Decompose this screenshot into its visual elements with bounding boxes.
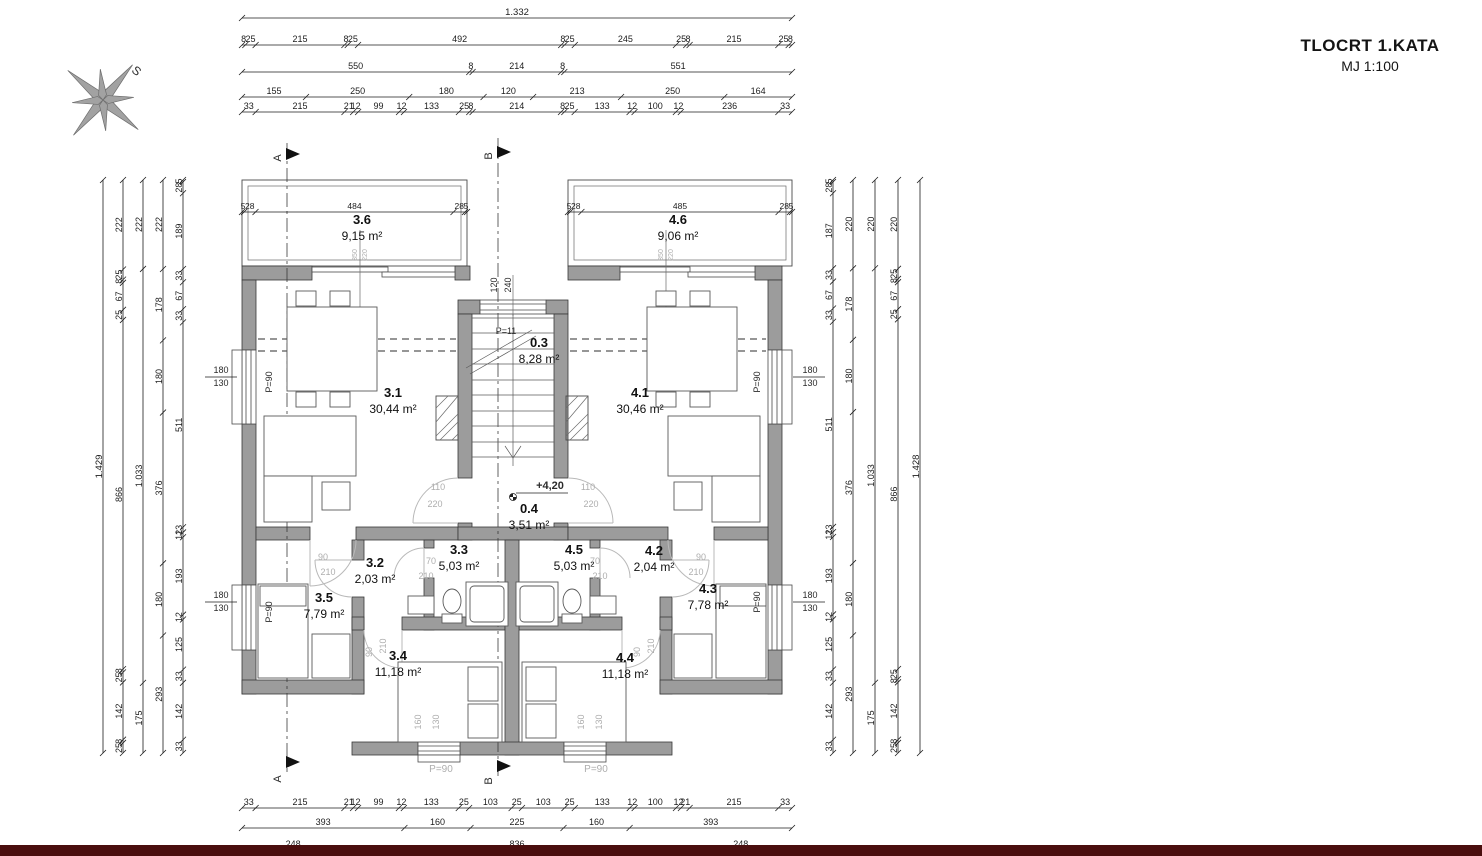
dim-label: 103 (483, 797, 498, 807)
dim-label: 99 (374, 101, 384, 111)
room-number: 3.6 (353, 212, 371, 227)
dim-label: 160 (430, 817, 445, 827)
wardrobe (674, 634, 712, 678)
room-number: 4.2 (645, 543, 663, 558)
dim-label: 215 (726, 797, 741, 807)
dim-label: 180 (439, 86, 454, 96)
room-area: 5,03 m² (554, 559, 595, 573)
dim-label: 484 (347, 201, 361, 211)
room-number: 4.5 (565, 542, 583, 557)
room-area: 7,78 m² (688, 598, 729, 612)
dim-label: 250 (665, 86, 680, 96)
dim-label: 125 (824, 637, 834, 652)
sink (590, 596, 616, 614)
title-block: TLOCRT 1.KATA MJ 1:100 (1290, 36, 1450, 74)
room-number: 3.5 (315, 590, 333, 605)
dim-label: 133 (424, 101, 439, 111)
chimney-hatch-left (436, 396, 458, 440)
dim-label: 1.428 (911, 455, 922, 479)
annotation-d210: 210 (592, 571, 607, 581)
dim-label: 178 (154, 297, 164, 312)
dim-label: 25 (889, 669, 899, 679)
dim-label: 25 (889, 309, 899, 319)
annotation-d110: 110 (581, 482, 595, 492)
dim-label: 245 (618, 34, 633, 44)
room-number: 3.4 (389, 648, 408, 663)
floor-plan-sheet: 1.33282521582549282524525821525855082148… (0, 0, 1482, 856)
dim-label: 25 (459, 797, 469, 807)
dim-label: 142 (889, 703, 899, 718)
room-number: 0.3 (530, 335, 548, 350)
dim-label: 25 (512, 797, 522, 807)
annotation-d110: 110 (431, 482, 445, 492)
dim-label: 164 (751, 86, 766, 96)
dim-label: 25 (114, 672, 124, 682)
dim-label: 12 (627, 101, 637, 111)
toilet (443, 589, 461, 613)
annotation-w180: 180 (802, 590, 817, 600)
dim-label: 25 (114, 743, 124, 753)
dim-label: 33 (824, 671, 834, 681)
annotation-w180: 180 (213, 590, 228, 600)
dim-label: 12 (174, 612, 184, 622)
dim-label: 1.332 (505, 7, 529, 18)
dim-label: 12 (824, 530, 834, 540)
annotation-p90: P=90 (264, 601, 274, 622)
dim-label: 236 (722, 101, 737, 111)
dim-label: 866 (114, 487, 124, 502)
dim-label: 5 (464, 201, 469, 211)
dim-label: 511 (174, 418, 184, 432)
dim-label: 25 (114, 310, 124, 320)
dim-label: 142 (114, 704, 124, 719)
annotation-w130: 130 (213, 603, 228, 613)
dim-label: 33 (244, 101, 254, 111)
dim-label: 866 (889, 487, 899, 502)
annotation-secA: A (272, 154, 284, 162)
annotation-level: +4,20 (536, 480, 564, 492)
room-area: 2,04 m² (634, 560, 675, 574)
annotation-w180: 180 (213, 365, 228, 375)
sofa (264, 416, 356, 476)
annotation-secB: B (483, 152, 495, 159)
dim-label: 193 (174, 568, 184, 583)
dim-label: 293 (154, 687, 164, 702)
room-area: 3,51 m² (509, 518, 550, 532)
room-area: 2,03 m² (355, 572, 396, 586)
dim-label: 222 (154, 217, 164, 232)
room-area: 8,28 m² (519, 352, 560, 366)
dim-label: 225 (509, 817, 524, 827)
annotation-w130: 130 (213, 378, 228, 388)
dim-label: 12 (396, 101, 406, 111)
annotation-d210: 210 (418, 571, 433, 581)
dim-label: 67 (889, 291, 899, 301)
dim-label: 133 (424, 797, 439, 807)
dim-label: 250 (350, 86, 365, 96)
annotation-w160: 160 (576, 714, 586, 729)
dim-label: 25 (245, 34, 255, 44)
dim-label: 180 (154, 369, 164, 384)
dim-label: 12 (351, 797, 361, 807)
annotation-d210: 210 (646, 638, 656, 653)
annotation-w130: 130 (431, 714, 441, 729)
dim-label: 8 (685, 34, 690, 44)
annotation-d220: 220 (583, 499, 598, 509)
annotation-d90: 90 (632, 647, 642, 657)
dim-label: 222 (114, 217, 124, 232)
dim-label: 155 (266, 86, 281, 96)
dim-label: 25 (889, 269, 899, 279)
dim-label: 33 (174, 741, 184, 751)
annotation-p90: P=90 (584, 764, 608, 775)
annotation-w120: 120 (489, 277, 499, 292)
drawing-title: TLOCRT 1.KATA (1290, 36, 1450, 56)
dim-label: 12 (627, 797, 637, 807)
dim-label: 393 (703, 817, 718, 827)
dim-label: 189 (174, 224, 184, 239)
dim-label: 5 (789, 201, 794, 211)
annotation-secB: B (483, 777, 495, 784)
dim-label: 133 (595, 101, 610, 111)
dim-label: 220 (866, 217, 876, 232)
annotation-d90: 90 (696, 552, 706, 562)
dim-label: 1.033 (134, 465, 144, 488)
dim-label: 8 (560, 61, 565, 71)
dim-label: 215 (292, 34, 307, 44)
dim-label: 180 (154, 592, 164, 607)
dim-label: 28 (245, 201, 255, 211)
dim-label: 220 (844, 217, 854, 232)
drawing-scale: MJ 1:100 (1290, 58, 1450, 74)
dining-table (647, 307, 737, 391)
footer-bar (0, 845, 1482, 856)
annotation-p90: P=90 (752, 371, 762, 392)
dim-label: 33 (780, 797, 790, 807)
dim-label: 220 (889, 217, 899, 232)
dim-label: 12 (351, 101, 361, 111)
dim-label: 180 (844, 368, 854, 383)
room-area: 30,46 m² (616, 402, 663, 416)
dim-label: 1.429 (94, 455, 105, 479)
dim-label: 8 (114, 279, 124, 284)
dim-label: 180 (844, 592, 854, 607)
annotation-d70: 70 (590, 556, 600, 566)
dim-label: 214 (509, 61, 524, 71)
dim-label: 393 (316, 817, 331, 827)
annotation-d220: 220 (668, 249, 675, 261)
annotation-d210: 210 (378, 638, 388, 653)
dining-table (287, 307, 377, 391)
dim-label: 25 (565, 34, 575, 44)
dim-label: 67 (824, 290, 834, 300)
dim-label: 33 (824, 310, 834, 320)
annotation-w240: 240 (503, 277, 513, 292)
room-number: 4.3 (699, 581, 717, 596)
sofa (668, 416, 760, 476)
dim-label: 28 (174, 183, 184, 193)
dim-label: 492 (452, 34, 467, 44)
dim-label: 222 (134, 217, 144, 232)
annotation-d220: 220 (427, 499, 442, 509)
dim-label: 67 (174, 291, 184, 301)
room-number: 3.3 (450, 542, 468, 557)
annotation-p90: P=90 (429, 764, 453, 775)
dim-label: 33 (824, 741, 834, 751)
compass-rose (38, 35, 168, 165)
dim-label: 8 (889, 278, 899, 283)
dim-label: 8 (788, 34, 793, 44)
dim-label: 1.033 (866, 464, 876, 487)
sink (408, 596, 434, 614)
annotation-compass: S (129, 63, 144, 79)
dim-label: 293 (844, 687, 854, 702)
room-area: 9,15 m² (342, 229, 383, 243)
dim-label: 103 (536, 797, 551, 807)
annotation-w180: 180 (802, 365, 817, 375)
room-area: 9,06 m² (658, 229, 699, 243)
toilet (563, 589, 581, 613)
dim-label: 100 (648, 797, 663, 807)
dim-label: 8 (468, 101, 473, 111)
dim-label: 187 (824, 223, 834, 238)
dim-label: 12 (396, 797, 406, 807)
dim-label: 160 (589, 817, 604, 827)
dim-label: 215 (726, 34, 741, 44)
dim-label: 28 (571, 201, 581, 211)
dim-label: 485 (673, 201, 687, 211)
room-number: 3.2 (366, 555, 384, 570)
level-marker (510, 493, 569, 501)
dim-label: 25 (564, 101, 574, 111)
dim-label: 33 (174, 671, 184, 681)
annotation-d220: 220 (362, 249, 369, 261)
dim-label: 125 (174, 637, 184, 652)
dim-label: 376 (844, 480, 854, 495)
dim-label: 12 (824, 612, 834, 622)
dim-label: 12 (174, 530, 184, 540)
annotation-w160: 160 (413, 714, 423, 729)
dim-label: 25 (348, 34, 358, 44)
dim-label: 33 (174, 271, 184, 281)
dim-label: 33 (780, 101, 790, 111)
dim-label: 142 (174, 704, 184, 719)
dim-label: 376 (154, 480, 164, 495)
dim-label: 67 (114, 291, 124, 301)
dim-label: 25 (114, 270, 124, 280)
dim-label: 551 (671, 61, 686, 71)
dim-label: 213 (570, 86, 585, 96)
dim-label: 100 (648, 101, 663, 111)
dim-label: 142 (824, 704, 834, 719)
wardrobe (312, 634, 350, 678)
dim-label: 175 (866, 710, 876, 725)
room-number: 0.4 (520, 501, 539, 516)
dim-label: 12 (673, 101, 683, 111)
room-number: 4.6 (669, 212, 687, 227)
dim-label: 120 (501, 86, 516, 96)
annotation-p11: P=11 (496, 326, 517, 336)
chimney-hatch-right (566, 396, 588, 440)
annotation-d350: 350 (352, 249, 359, 261)
annotation-p90: P=90 (264, 371, 274, 392)
dim-label: 25 (565, 797, 575, 807)
floor-plan-drawing: 1.33282521582549282524525821525855082148… (0, 0, 1482, 856)
dim-label: 25 (889, 743, 899, 753)
dim-label: 133 (595, 797, 610, 807)
dim-label: 33 (174, 311, 184, 321)
annotation-d210: 210 (320, 567, 335, 577)
room-area: 5,03 m² (439, 559, 480, 573)
annotation-w130: 130 (802, 378, 817, 388)
annotation-d70: 70 (426, 556, 436, 566)
dim-label: 99 (373, 797, 383, 807)
room-area: 30,44 m² (369, 402, 416, 416)
annotation-p90: P=90 (752, 591, 762, 612)
dim-label: 8 (468, 61, 473, 71)
room-area: 11,18 m² (602, 667, 648, 681)
room-area: 7,79 m² (304, 607, 345, 621)
dim-label: 175 (134, 710, 144, 725)
dim-label: 8 (889, 678, 899, 683)
room-number: 3.1 (384, 385, 402, 400)
dim-label: 215 (292, 797, 307, 807)
annotation-d210: 210 (688, 567, 703, 577)
dim-label: 511 (824, 417, 834, 431)
dim-label: 178 (844, 297, 854, 312)
dim-label: 28 (824, 183, 834, 193)
dim-label: 214 (509, 101, 524, 111)
room-number: 4.1 (631, 385, 649, 400)
dim-label: 193 (824, 568, 834, 583)
annotation-w130: 130 (594, 714, 604, 729)
annotation-d90: 90 (318, 552, 328, 562)
dim-label: 33 (824, 270, 834, 280)
annotation-secA: A (272, 775, 284, 783)
annotation-d90: 90 (364, 647, 374, 657)
annotation-d350: 350 (658, 249, 665, 261)
annotation-w130: 130 (802, 603, 817, 613)
dim-label: 215 (293, 101, 308, 111)
dim-label: 21 (680, 797, 690, 807)
dim-label: 33 (244, 797, 254, 807)
room-area: 11,18 m² (375, 665, 421, 679)
dim-label: 550 (348, 61, 363, 71)
